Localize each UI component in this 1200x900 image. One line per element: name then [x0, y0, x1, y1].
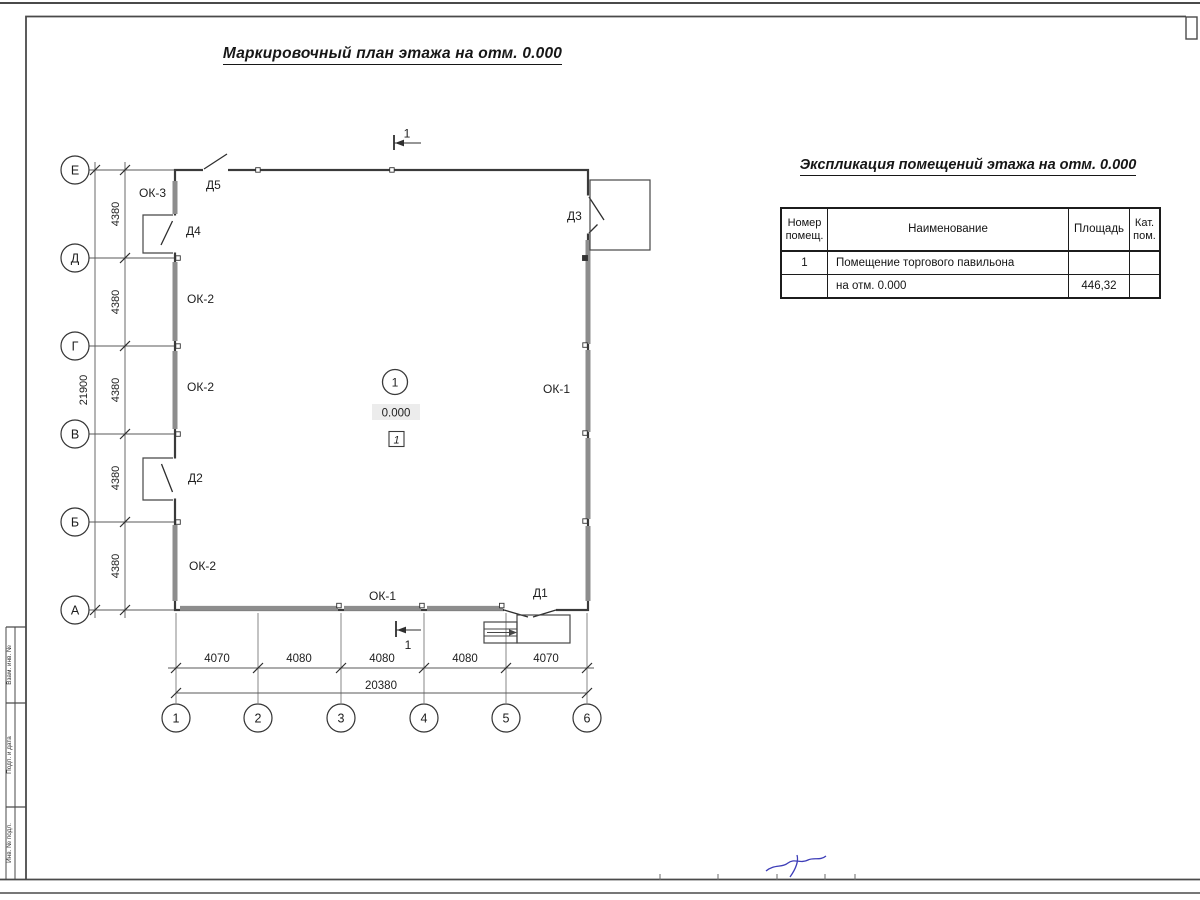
- dim-text: 4380: [110, 290, 122, 314]
- header-line: Кат.: [1130, 217, 1159, 229]
- cell-area: 446,32: [1069, 274, 1130, 298]
- cell-area: [1069, 251, 1130, 274]
- axis-label: Г: [72, 339, 79, 353]
- door-label-d4: Д4: [186, 224, 201, 238]
- section-arrow: [397, 627, 406, 634]
- cell-name: на отм. 0.000: [828, 274, 1069, 298]
- dim-text: 4380: [110, 202, 122, 226]
- cell-room-number: [781, 274, 828, 298]
- axis-label: 1: [173, 711, 180, 725]
- entry-vestibule-d4: [143, 215, 173, 253]
- exterior-walls: [175, 170, 588, 610]
- plan-title-text: Маркировочный план этажа на отм. 0.000: [223, 45, 562, 65]
- window-label-ok2: ОК-2: [189, 559, 216, 573]
- plan-canvas: Взам. инв. № Подп. и дата Инв. № подл. Е…: [0, 0, 1200, 900]
- dim-text: 4070: [204, 653, 230, 665]
- door-label-d5: Д5: [206, 178, 221, 192]
- header-category: Кат. пом.: [1130, 208, 1161, 251]
- row-axis-lines: [89, 170, 174, 610]
- drawing-sheet: Взам. инв. № Подп. и дата Инв. № подл. Е…: [0, 0, 1200, 900]
- axis-label: 6: [584, 711, 591, 725]
- table-header-row: Номер помещ. Наименование Площадь Кат. п…: [781, 208, 1160, 251]
- signature-mark: [766, 855, 826, 877]
- dim-text: 4380: [110, 554, 122, 578]
- axis-label: 5: [503, 711, 510, 725]
- header-name: Наименование: [828, 208, 1069, 251]
- steps-arrow: [509, 629, 517, 635]
- door-label-d2: Д2: [188, 471, 203, 485]
- explication-table: Номер помещ. Наименование Площадь Кат. п…: [780, 207, 1161, 299]
- dim-text: 4080: [286, 653, 312, 665]
- axis-label: 4: [421, 711, 428, 725]
- finish-mark: 1: [393, 434, 399, 446]
- dim-text: 4070: [533, 653, 559, 665]
- section-arrow: [395, 140, 404, 147]
- cell-text: на отм. 0.000: [828, 280, 1068, 292]
- cell-room-number: 1: [781, 251, 828, 274]
- building: [143, 154, 650, 643]
- cell-category: [1130, 251, 1161, 274]
- dim-text: 4080: [369, 653, 395, 665]
- explication-title-text: Экспликация помещений этажа на отм. 0.00…: [800, 157, 1137, 176]
- window-label-ok1: ОК-1: [369, 589, 396, 603]
- header-line: Номер: [782, 217, 827, 229]
- stamp-label: Подп. и дата: [6, 736, 13, 774]
- entry-vestibule-d2: [143, 458, 173, 500]
- cell-name: Помещение торгового павильона: [828, 251, 1069, 274]
- stamp-label: Взам. инв. №: [6, 645, 13, 685]
- window-label-ok3: ОК-3: [139, 186, 166, 200]
- axis-label: 2: [255, 711, 262, 725]
- col-axis-bubbles: [162, 704, 601, 732]
- door-label-d3: Д3: [567, 209, 582, 223]
- axis-label: Е: [71, 163, 79, 177]
- cell-text: Помещение торгового павильона: [828, 257, 1068, 269]
- dim-total-text: 20380: [365, 680, 397, 692]
- table-row: 1 Помещение торгового павильона: [781, 251, 1160, 274]
- header-area: Площадь: [1069, 208, 1130, 251]
- stamp-label: Инв. № подл.: [6, 823, 13, 863]
- col-axis-labels: 1 2 3 4 5 6: [173, 711, 591, 725]
- entry-porch-d1: [517, 615, 570, 643]
- header-line: пом.: [1130, 230, 1159, 242]
- explication-title: Экспликация помещений этажа на отм. 0.00…: [770, 156, 1166, 174]
- section-number: 1: [404, 127, 411, 141]
- window-label-ok2: ОК-2: [187, 292, 214, 306]
- title-block-stamp-labels: Взам. инв. № Подп. и дата Инв. № подл.: [6, 645, 13, 863]
- dim-text: 4380: [110, 466, 122, 490]
- dim-total-text: 21900: [78, 375, 90, 406]
- axis-label: 3: [338, 711, 345, 725]
- entry-steps: [484, 622, 517, 643]
- window-label-ok1: ОК-1: [543, 382, 570, 396]
- dim-text: 4080: [452, 653, 478, 665]
- axis-label: А: [71, 603, 80, 617]
- door-label-d1: Д1: [533, 586, 548, 600]
- axis-label: В: [71, 427, 79, 441]
- cell-category: [1130, 274, 1161, 298]
- plan-title: Маркировочный план этажа на отм. 0.000: [175, 45, 610, 63]
- room-number: 1: [392, 375, 399, 389]
- axis-label: Б: [71, 515, 79, 529]
- header-room-number: Номер помещ.: [781, 208, 828, 251]
- dim-text: 4380: [110, 378, 122, 402]
- header-line: помещ.: [782, 230, 827, 242]
- section-number: 1: [405, 638, 412, 652]
- axis-label: Д: [71, 251, 80, 265]
- table-row: на отм. 0.000 446,32: [781, 274, 1160, 298]
- window-label-ok2: ОК-2: [187, 380, 214, 394]
- level-mark: 0.000: [382, 408, 411, 420]
- entry-porch-d3: [590, 180, 650, 250]
- frame-corner-box: [1186, 17, 1197, 39]
